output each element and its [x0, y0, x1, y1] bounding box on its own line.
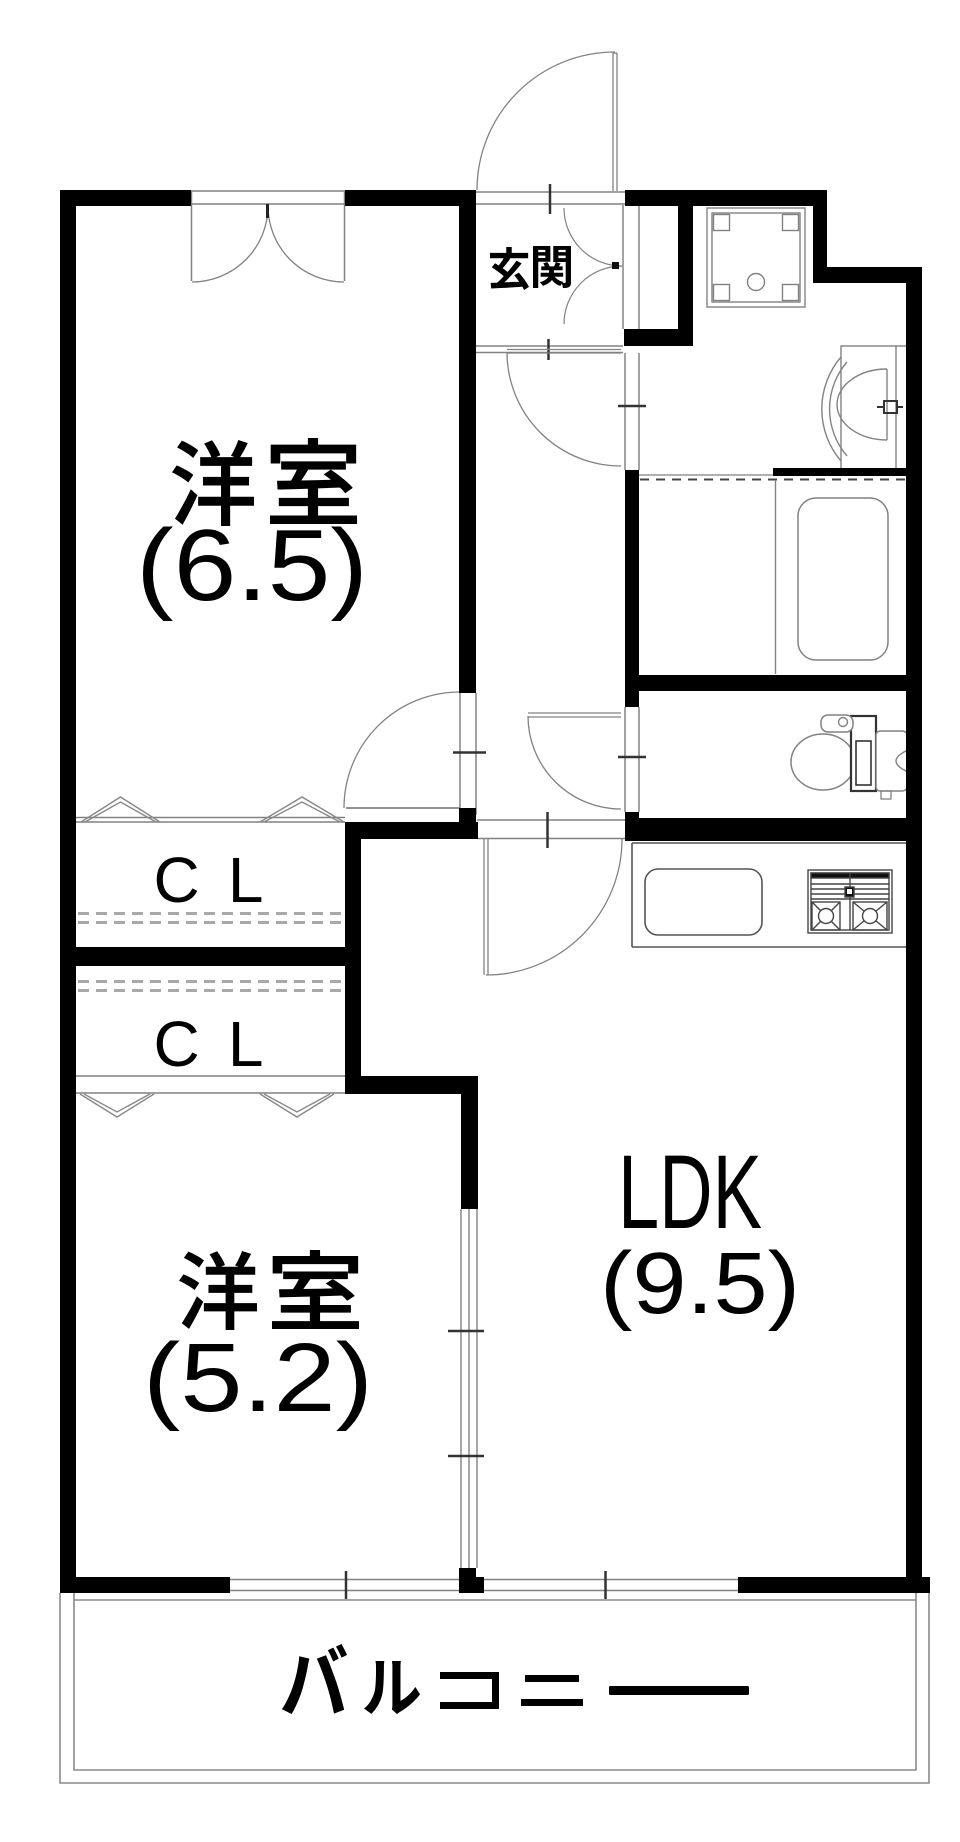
- svg-text:(5.2): (5.2): [143, 1323, 373, 1432]
- svg-text:LDK: LDK: [618, 1134, 762, 1251]
- svg-text:(9.5): (9.5): [600, 1235, 800, 1332]
- svg-text:(6.5): (6.5): [136, 510, 368, 622]
